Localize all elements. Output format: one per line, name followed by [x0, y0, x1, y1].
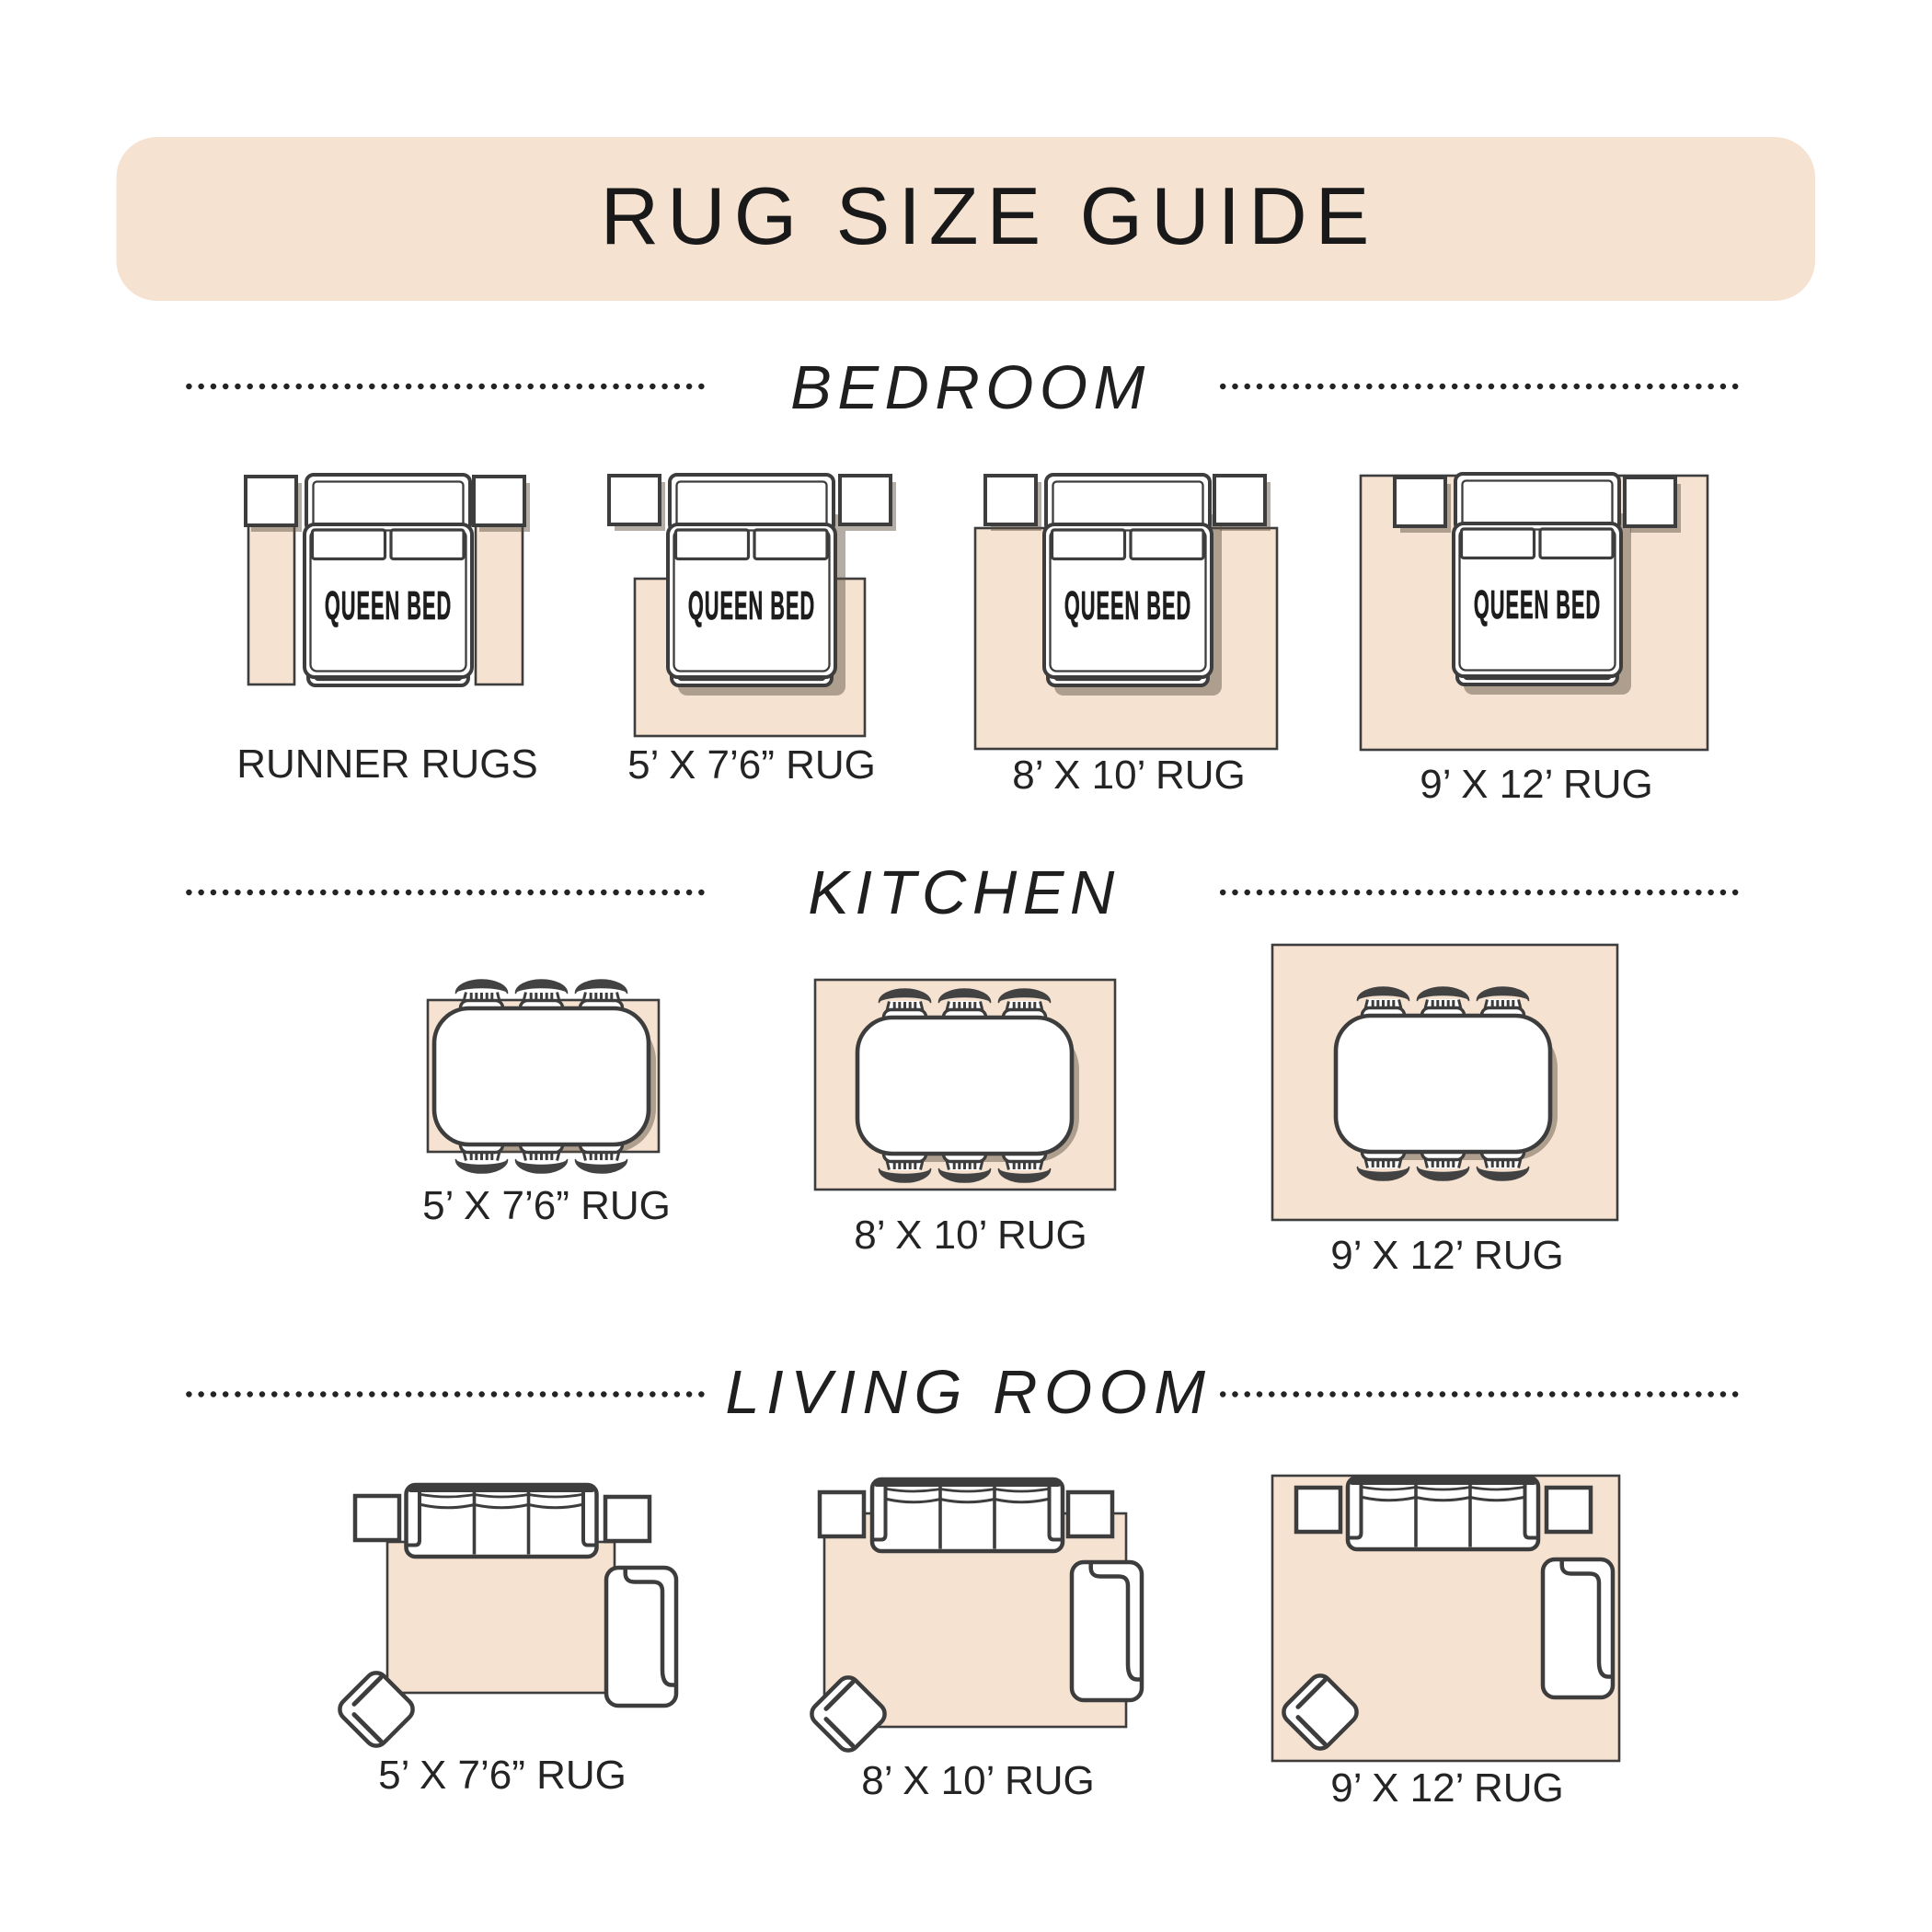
- svg-text:9’ X 12’ RUG: 9’ X 12’ RUG: [1330, 1765, 1564, 1811]
- svg-text:5’ X 7’6” RUG: 5’ X 7’6” RUG: [627, 742, 876, 788]
- svg-text:9’ X 12’ RUG: 9’ X 12’ RUG: [1420, 762, 1653, 807]
- svg-text:KITCHEN: KITCHEN: [808, 858, 1121, 927]
- svg-text:8’ X 10’ RUG: 8’ X 10’ RUG: [1012, 753, 1246, 798]
- svg-text:9’ X 12’ RUG: 9’ X 12’ RUG: [1330, 1233, 1564, 1278]
- svg-text:BEDROOM: BEDROOM: [790, 353, 1151, 422]
- svg-text:RUG SIZE GUIDE: RUG SIZE GUIDE: [601, 170, 1378, 261]
- svg-text:LIVING ROOM: LIVING ROOM: [725, 1358, 1212, 1427]
- svg-text:5’ X 7’6” RUG: 5’ X 7’6” RUG: [378, 1753, 627, 1798]
- svg-text:8’ X 10’ RUG: 8’ X 10’ RUG: [861, 1758, 1095, 1803]
- svg-text:8’ X 10’ RUG: 8’ X 10’ RUG: [854, 1213, 1087, 1258]
- svg-text:5’ X 7’6” RUG: 5’ X 7’6” RUG: [422, 1183, 671, 1228]
- svg-text:RUNNER RUGS: RUNNER RUGS: [236, 742, 538, 787]
